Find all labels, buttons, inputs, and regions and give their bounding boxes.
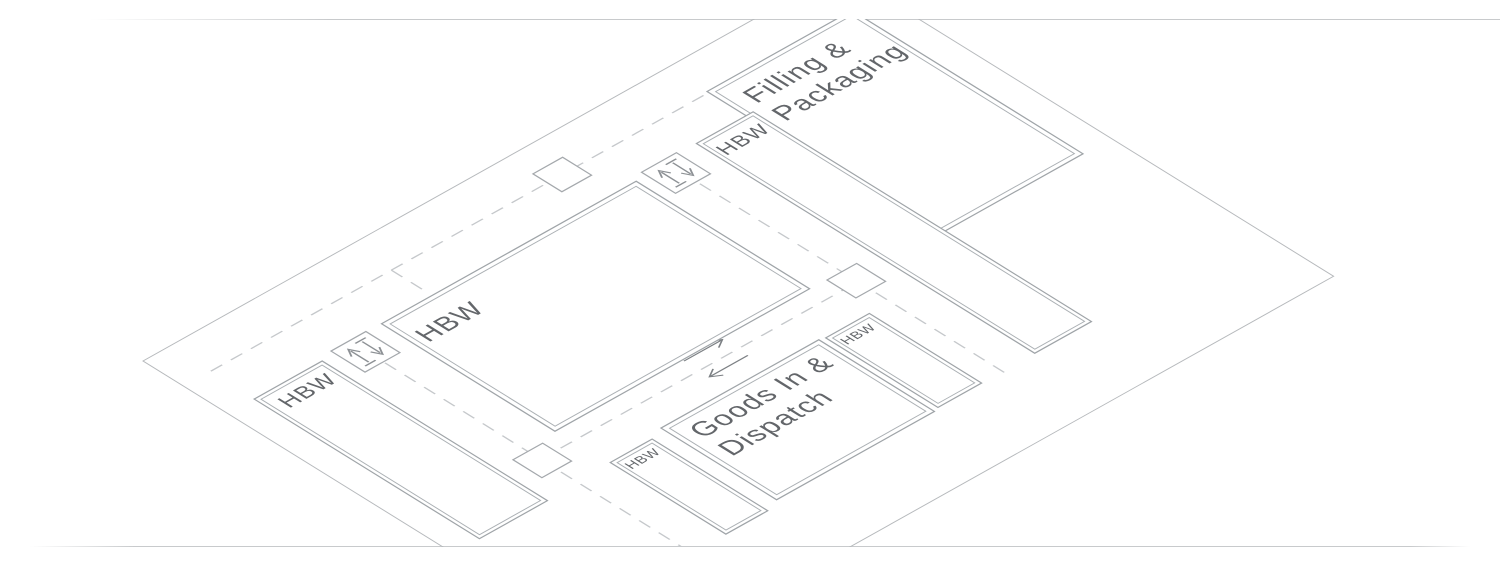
lift-icon-right xyxy=(642,153,711,194)
flow-arrow-backward-icon xyxy=(704,352,753,380)
transport-spur-to-hbw xyxy=(391,270,430,294)
diagram-stage: Filling & Packaging HBW HBW HBW xyxy=(0,19,1500,547)
factory-layout-page: { "diagram": { "title": "Isometric facto… xyxy=(0,0,1500,574)
factory-floor-diagram: Filling & Packaging HBW HBW HBW xyxy=(143,19,1334,547)
